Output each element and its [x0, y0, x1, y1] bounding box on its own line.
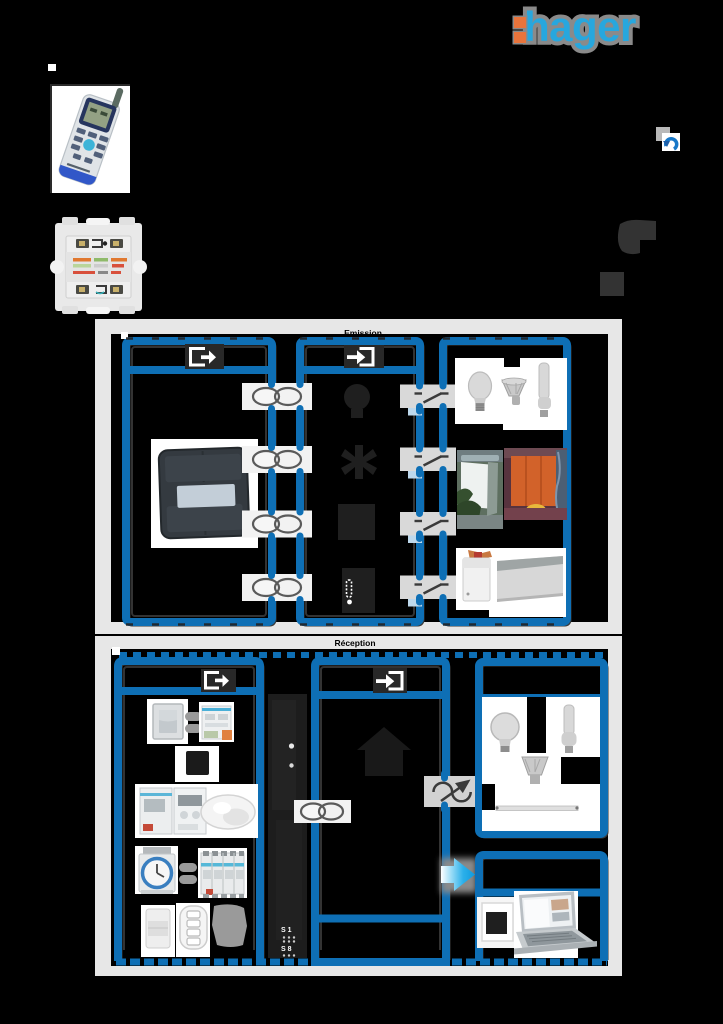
- svg-text:S 1: S 1: [281, 927, 292, 934]
- svg-text:Réception: Réception: [334, 638, 375, 648]
- svg-text:Emission: Emission: [344, 328, 382, 338]
- svg-text:hager: hager: [524, 3, 636, 50]
- svg-text:S 8: S 8: [281, 946, 292, 953]
